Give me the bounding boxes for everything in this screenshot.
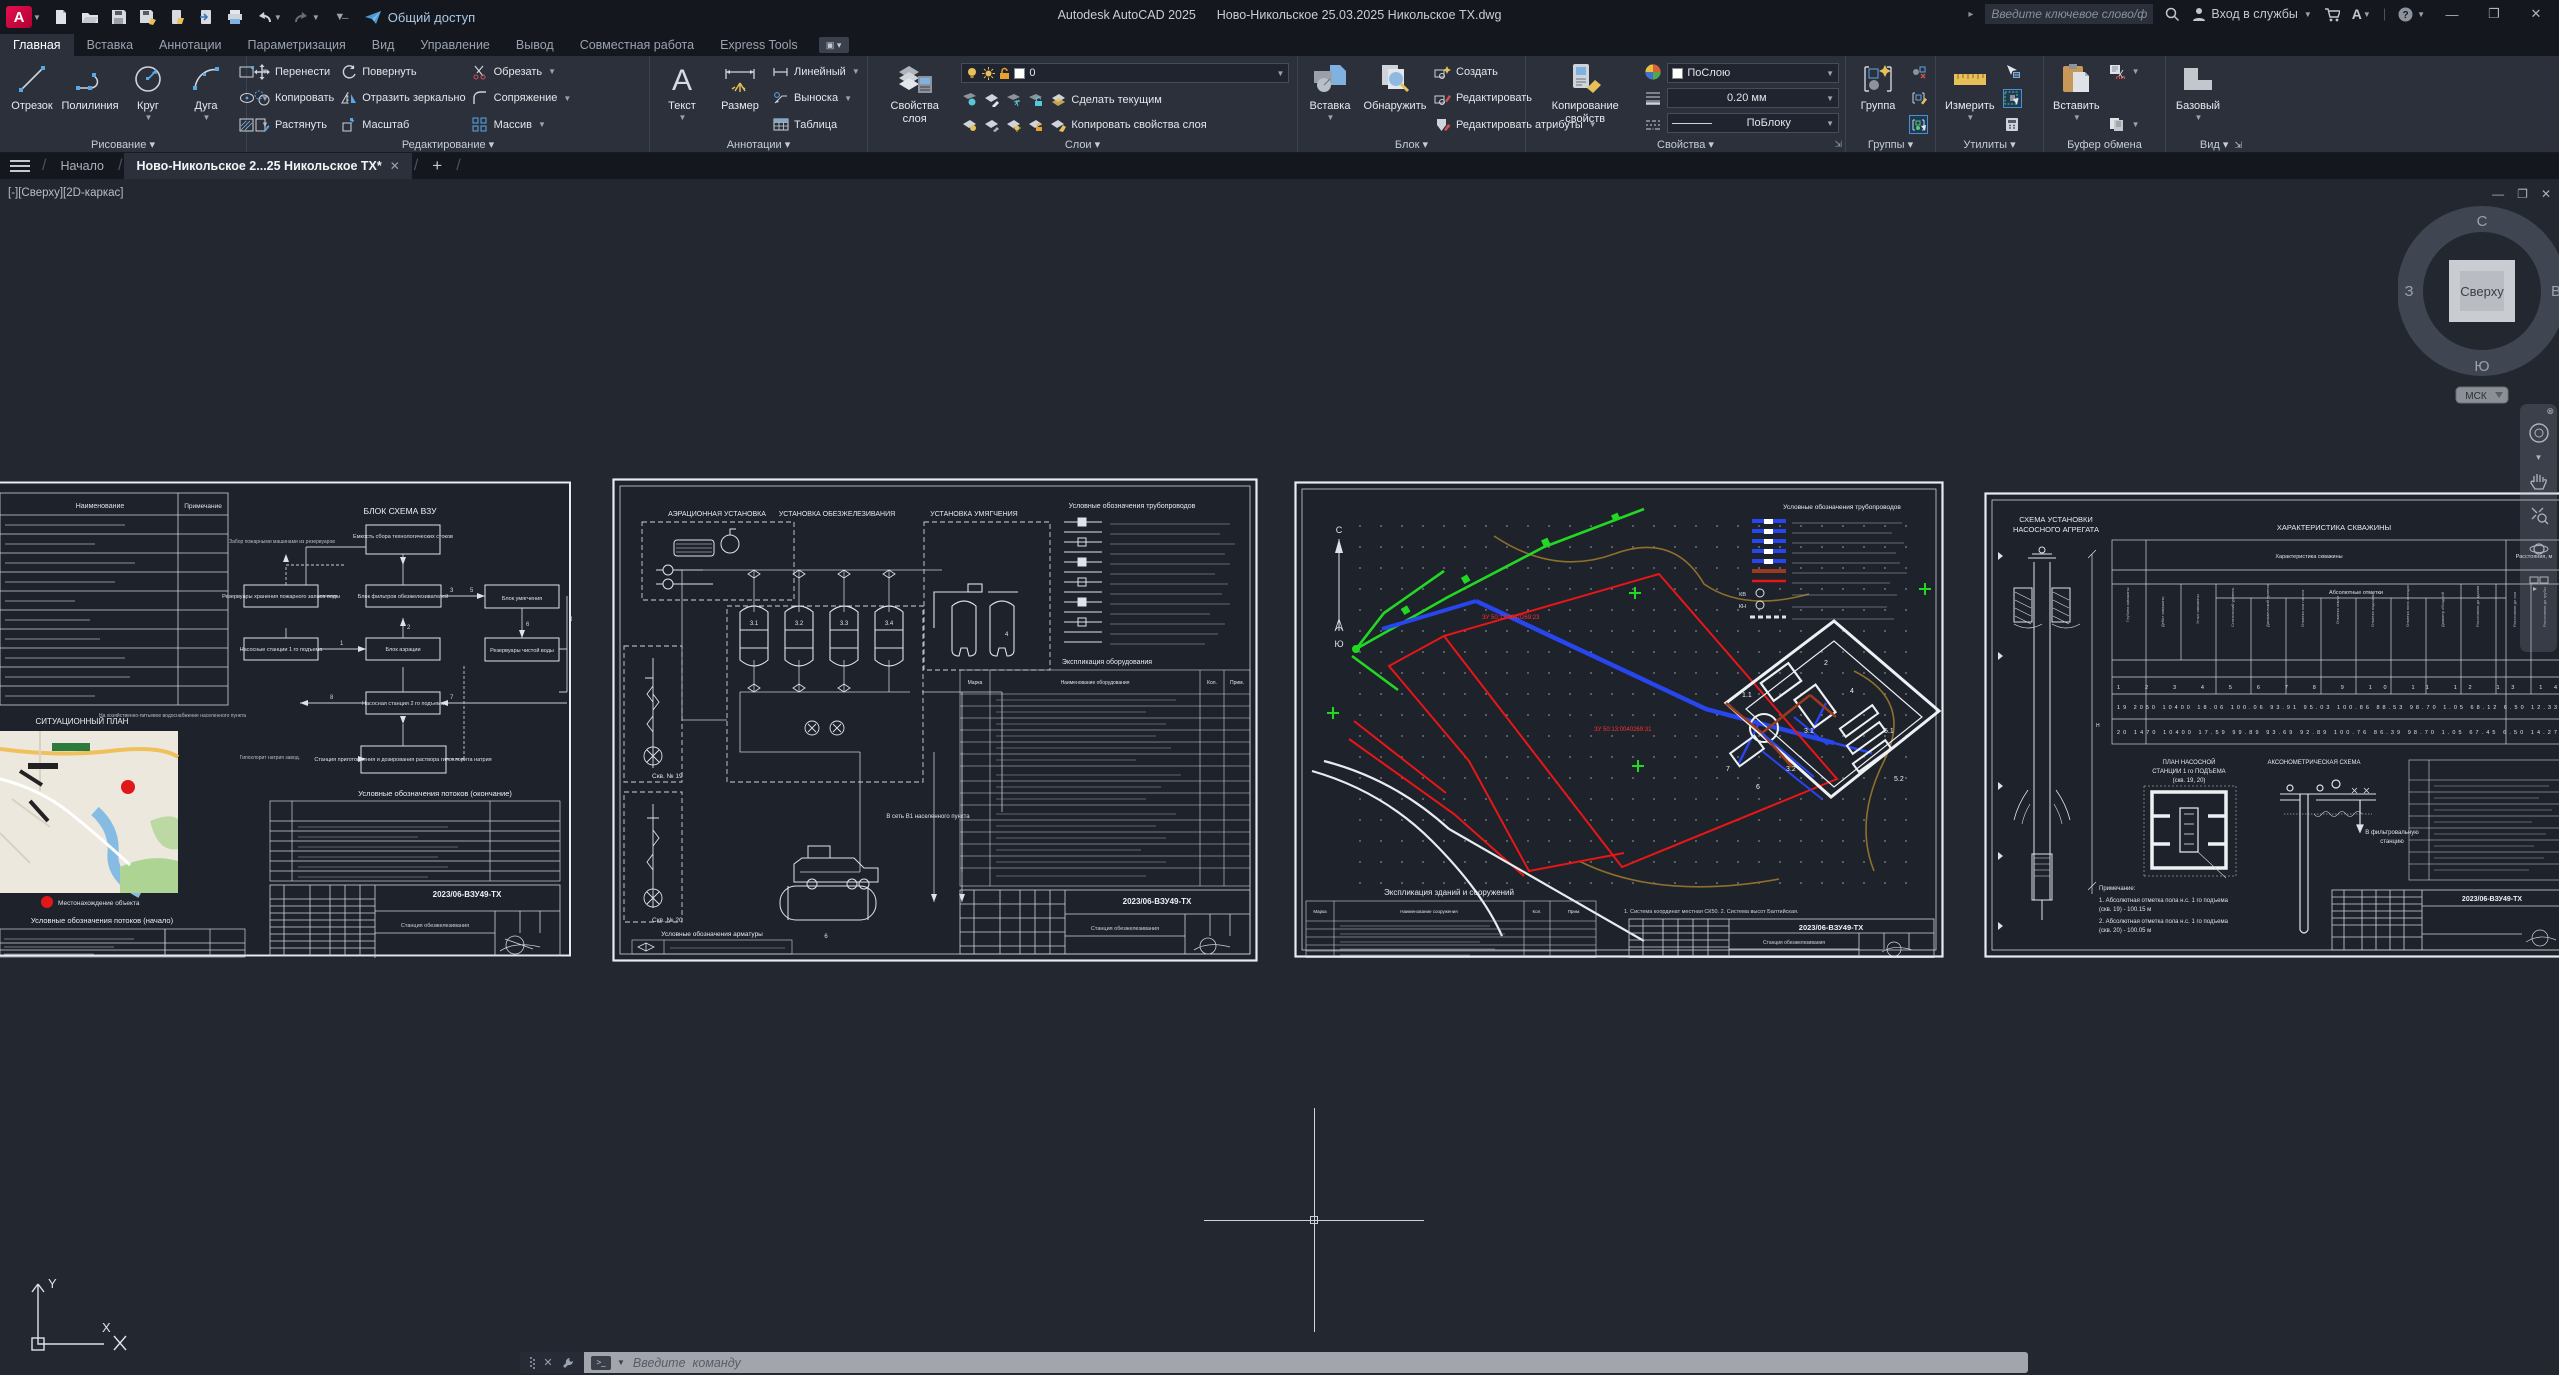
svg-text:Примечание: Примечание [184, 503, 222, 510]
show-motion-icon[interactable] [2520, 566, 2557, 600]
svg-text:8: 8 [330, 695, 334, 701]
stamp [1194, 938, 1230, 954]
linear-dim-button[interactable]: Линейный▼ [772, 63, 860, 80]
trim-scissors-icon [472, 63, 489, 80]
svg-text:Станция приготовления и дозиро: Станция приготовления и дозирования раст… [314, 757, 491, 763]
chevron-down-icon: ▼ [2363, 10, 2371, 19]
svg-text:2023/06-ВЗУ49-ТХ: 2023/06-ВЗУ49-ТХ [433, 890, 502, 899]
user-icon [2192, 7, 2206, 21]
insert-block-button[interactable]: Вставка▼ [1304, 59, 1356, 136]
keytip-arrow-icon[interactable]: ▸ [1968, 9, 1973, 20]
viewcube-north[interactable]: С [2477, 213, 2488, 230]
viewcube-east[interactable]: В [2551, 283, 2559, 300]
base-view-button[interactable]: Базовый▼ [2172, 59, 2224, 136]
layer-select[interactable]: 0 ▼ [961, 63, 1289, 83]
recent-commands-icon[interactable]: ▼ [617, 1358, 625, 1367]
panel-layers-label[interactable]: Слои ▾ [868, 138, 1297, 151]
sheet-4-drawing: СХЕМА УСТАНОВКИ НАСОСНОГО АГРЕГАТА ХАРАК… [1984, 492, 2559, 958]
doc-tab-start[interactable]: Начало [48, 153, 116, 179]
layer-freeze-icon[interactable] [1005, 91, 1022, 108]
svg-text:Наименование: Наименование [76, 503, 125, 510]
open-from-web-mobile-button[interactable] [197, 8, 215, 26]
svg-text:Емкость сбора технологических: Емкость сбора технологических стоков [353, 534, 453, 540]
autocad-logo-icon: A [6, 6, 32, 28]
svg-text:3.2: 3.2 [1786, 766, 1796, 773]
svg-text:Забор пожарными машинами из ре: Забор пожарными машинами из резервуаров [229, 539, 335, 545]
match-properties-icon [1567, 61, 1603, 97]
copy-clip-icon [2109, 116, 2126, 133]
measure-button[interactable]: Измерить▼ [1942, 59, 1998, 136]
ribbon-display-toggle[interactable]: ▣ ▾ [819, 37, 849, 53]
layer-unlock-icon [999, 67, 1010, 80]
svg-text:2: 2 [1824, 660, 1828, 667]
title-bar: A ▼ ▼ ▼ ▼̶ Общий доступ Autodesk AutoCAD… [0, 0, 2559, 34]
svg-text:1. Абсолютная отметка пола н.с: 1. Абсолютная отметка пола н.с. 1 го под… [2099, 898, 2229, 904]
fillet-icon [472, 90, 489, 107]
sheet-4-well-station: СХЕМА УСТАНОВКИ НАСОСНОГО АГРЕГАТА ХАРАК… [1984, 492, 2559, 958]
text-icon: A [667, 61, 697, 97]
svg-text:Резервуары хранения пожарного: Резервуары хранения пожарного запаса вод… [222, 594, 340, 600]
svg-text:2023/06-ВЗУ49-ТХ: 2023/06-ВЗУ49-ТХ [2462, 896, 2522, 903]
doc-tabs-menu-button[interactable] [0, 153, 40, 179]
svg-text:3.2: 3.2 [795, 621, 804, 627]
svg-text:6: 6 [824, 934, 828, 940]
svg-text:Y: Y [48, 1276, 57, 1291]
circle-button[interactable]: Круг▼ [122, 59, 174, 136]
ribbon: Отрезок Полилиния Круг▼ Дуга▼ ▼ ▼ ▼ Рисо… [0, 56, 2559, 153]
chevron-down-icon: ▼ [2417, 10, 2425, 19]
svg-text:?: ? [2403, 10, 2409, 21]
svg-text:20 1470 10400 17.59 99: 20 1470 10400 17.59 99.89 93.69 92.89 10… [2117, 730, 2557, 736]
share-plane-icon [364, 10, 382, 25]
share-button[interactable]: Общий доступ [364, 10, 475, 25]
circle-icon [131, 61, 165, 97]
rotate-icon [340, 63, 357, 80]
ucs-menu-button[interactable]: МСК [2456, 387, 2508, 403]
insert-block-icon [1312, 61, 1348, 97]
app-menu-button[interactable]: A ▼ [6, 6, 41, 28]
leader-button[interactable]: Выноска▼ [772, 90, 860, 107]
make-current-label[interactable]: Сделать текущим [1071, 94, 1161, 106]
svg-text:Прим.: Прим. [1230, 680, 1244, 686]
viewcube[interactable]: Сверху С В Ю З МСК [2398, 199, 2559, 411]
help-icon: ? [2398, 7, 2413, 22]
command-line-dock: ✕ >_ ▼ [520, 1352, 2028, 1373]
chevron-down-icon: ▼ [1276, 69, 1284, 78]
svg-text:5: 5 [470, 588, 474, 594]
svg-text:4: 4 [1005, 632, 1009, 638]
layer-lock-icon[interactable] [1027, 91, 1044, 108]
layer-thaw-all-icon[interactable] [1005, 116, 1022, 133]
svg-text:X: X [102, 1320, 111, 1335]
command-input-area[interactable]: >_ ▼ [584, 1352, 2028, 1373]
app-store-cart-icon[interactable] [2324, 7, 2340, 22]
svg-text:Характеристика скважины: Характеристика скважины [2275, 554, 2342, 560]
svg-text:АКСОНОМЕТРИЧЕСКАЯ СХЕМА: АКСОНОМЕТРИЧЕСКАЯ СХЕМА [2267, 760, 2360, 766]
svg-text:Скв. № 20: Скв. № 20 [652, 917, 683, 924]
move-icon [253, 63, 270, 80]
stamp [1882, 942, 1912, 956]
svg-text:Экспликация оборудования: Экспликация оборудования [1062, 658, 1152, 666]
new-doc-tab-button[interactable]: + [420, 153, 454, 179]
base-view-icon [2180, 61, 2216, 97]
group-icon [1861, 61, 1895, 97]
linetype-icon [1644, 116, 1661, 133]
viewcube-south[interactable]: Ю [2474, 358, 2489, 375]
layer-row-2: Сделать текущим [961, 91, 1291, 108]
redo-button[interactable]: ▼ [293, 10, 320, 24]
svg-text:6: 6 [1756, 784, 1760, 791]
svg-text:КН: КН [1739, 604, 1746, 610]
make-current-layer-icon[interactable] [1049, 91, 1066, 108]
viewcube-top-label: Сверху [2460, 284, 2504, 299]
sheet-2-drawing: АЭРАЦИОННАЯ УСТАНОВКА УСТАНОВКА ОБЕЗЖЕЛЕ… [612, 478, 1258, 962]
svg-text:МСК: МСК [2465, 391, 2487, 402]
lineweight-icon [1644, 90, 1661, 107]
layer-properties-icon [896, 61, 934, 97]
color-wheel-icon [1644, 63, 1661, 80]
mirror-button[interactable]: Отразить зеркально [340, 90, 465, 107]
svg-text:Дебит скважины: Дебит скважины [2160, 596, 2165, 627]
layer-properties-button[interactable]: Свойства слоя [874, 59, 955, 136]
quick-select-icon[interactable] [2004, 63, 2021, 80]
panel-annotation-label[interactable]: Аннотации ▾ [650, 138, 867, 151]
svg-text:АЭРАЦИОННАЯ УСТАНОВКА: АЭРАЦИОННАЯ УСТАНОВКА [668, 511, 766, 518]
svg-text:С: С [1336, 525, 1343, 535]
svg-text:УСТАНОВКА ОБЕЗЖЕЛЕЗИВАНИЯ: УСТАНОВКА ОБЕЗЖЕЛЕЗИВАНИЯ [779, 511, 895, 518]
tab-upravlenie[interactable]: Управление [407, 34, 503, 56]
panel-properties-label[interactable]: Свойства ▾ [1526, 138, 1845, 151]
current-layer-name: 0 [1029, 67, 1271, 79]
stamp [2526, 930, 2556, 946]
save-to-web-mobile-button[interactable] [168, 8, 186, 26]
detect-block-icon [1378, 61, 1412, 97]
ungroup-icon[interactable] [1910, 63, 1927, 80]
cut-button[interactable]: ▼ [2109, 63, 2140, 80]
create-block-icon [1434, 63, 1451, 80]
svg-text:(скв. 19, 20): (скв. 19, 20) [2173, 778, 2206, 784]
tab-annotacii[interactable]: Аннотации [146, 34, 234, 56]
svg-text:Кол.: Кол. [1207, 680, 1217, 686]
steering-wheel-icon[interactable] [2520, 416, 2557, 450]
svg-text:Отметка оси насоса: Отметка оси насоса [2300, 589, 2305, 627]
svg-text:ХАРАКТЕРИСТИКА СКВАЖИНЫ: ХАРАКТЕРИСТИКА СКВАЖИНЫ [2277, 523, 2392, 532]
window-title: Autodesk AutoCAD 2025 Ново-Никольское 25… [1058, 8, 1502, 22]
quick-access-toolbar: A ▼ ▼ ▼ ▼̶ Общий доступ [6, 2, 475, 32]
svg-text:БЛОК СХЕМА ВЗУ: БЛОК СХЕМА ВЗУ [363, 506, 437, 516]
properties-dialog-launcher[interactable]: ⇲ [1834, 139, 1842, 150]
group-selection-toggle[interactable] [1910, 116, 1927, 133]
svg-text:19 2050 10400 18.06 10: 19 2050 10400 18.06 100.06 93.91 95.03 1… [2117, 705, 2557, 711]
trim-button[interactable]: Обрезать▼ [472, 63, 572, 80]
svg-text:ПЛАН НАСОСНОЙ: ПЛАН НАСОСНОЙ [2163, 758, 2216, 766]
svg-text:3.3: 3.3 [840, 621, 849, 627]
match-layer-icon[interactable] [1049, 116, 1066, 133]
close-doc-icon[interactable]: ✕ [390, 159, 400, 173]
layer-thaw-sun-icon [982, 67, 995, 80]
help-button[interactable]: ? ▼ [2398, 7, 2425, 22]
svg-text:Наименование сооружения: Наименование сооружения [1400, 909, 1458, 914]
layer-isolate-icon[interactable] [983, 91, 1000, 108]
open-file-button[interactable] [81, 8, 99, 26]
svg-text:4: 4 [1850, 688, 1854, 695]
search-icon[interactable] [2165, 7, 2180, 22]
autocad-window: A ▼ ▼ ▼ ▼̶ Общий доступ Autodesk AutoCAD… [0, 0, 2559, 1375]
copy-icon [253, 90, 270, 107]
svg-text:станцию: станцию [2380, 839, 2404, 845]
svg-text:Марка: Марка [1313, 909, 1327, 914]
search-input[interactable] [1985, 4, 2153, 24]
chevron-down-icon: ▼ [33, 13, 41, 22]
sheet-3-drawing: С Ю [1294, 481, 1944, 958]
layer-unisolate-icon[interactable] [983, 116, 1000, 133]
command-input[interactable] [631, 1355, 2021, 1371]
fillet-button[interactable]: Сопряжение▼ [472, 90, 572, 107]
scale-button[interactable]: Масштаб [340, 116, 465, 133]
group-button[interactable]: Группа [1852, 59, 1904, 136]
svg-text:Прим.: Прим. [1568, 909, 1581, 914]
panel-utilities-label[interactable]: Утилиты ▾ [1936, 138, 2043, 151]
arc-icon [189, 61, 223, 97]
svg-text:Условные обозначения трубопров: Условные обозначения трубопроводов [1069, 502, 1196, 510]
layer-row-3: Копировать свойства слоя [961, 116, 1291, 133]
svg-text:Условные обозначения потоков (: Условные обозначения потоков (начало) [31, 916, 174, 925]
panel-groups-label[interactable]: Группы ▾ [1846, 138, 1935, 151]
tab-vstavka[interactable]: Вставка [74, 34, 146, 56]
line-icon [15, 61, 49, 97]
panel-groups: Группа Группы ▾ [1846, 56, 1936, 152]
dimension-icon [722, 61, 758, 97]
svg-text:Примечание:: Примечание: [2099, 886, 2136, 892]
svg-text:Глубина скважины: Глубина скважины [2125, 587, 2130, 622]
svg-text:Резервуары чистой воды: Резервуары чистой воды [490, 647, 554, 654]
cut-icon [2109, 63, 2126, 80]
panel-block: Вставка▼ Обнаружить Создать Редактироват… [1298, 56, 1526, 152]
svg-text:Марка: Марка [968, 680, 983, 686]
rotate-button[interactable]: Повернуть [340, 63, 465, 80]
svg-text:2023/06-ВЗУ49-ТХ: 2023/06-ВЗУ49-ТХ [1799, 923, 1863, 932]
copy-button[interactable]: Копировать [253, 90, 334, 107]
detect-block-button[interactable]: Обнаружить [1362, 59, 1428, 136]
panel-draw: Отрезок Полилиния Круг▼ Дуга▼ ▼ ▼ ▼ Рисо… [0, 56, 247, 152]
copy-clip-button[interactable]: ▼ [2109, 116, 2140, 133]
svg-text:2023/06-ВЗУ49-ТХ: 2023/06-ВЗУ49-ТХ [1123, 897, 1192, 906]
mirror-icon [340, 90, 357, 107]
viewcube-west[interactable]: З [2404, 283, 2413, 300]
svg-text:A: A [672, 64, 692, 95]
tab-vyvod[interactable]: Вывод [503, 34, 567, 56]
command-close-icon[interactable]: ✕ [543, 1356, 552, 1369]
linear-dim-icon [772, 63, 789, 80]
panel-clipboard: Вставить▼ ▼ ▼ Буфер обмена [2044, 56, 2166, 152]
svg-text:Блок фильтров обезжелезивателе: Блок фильтров обезжелезивателей [358, 593, 449, 600]
sign-in-button[interactable]: Вход в службы▼ [2192, 7, 2311, 21]
panel-block-label[interactable]: Блок ▾ [1298, 138, 1525, 151]
svg-text:6: 6 [526, 622, 530, 628]
ribbon-tab-bar: Главная Вставка Аннотации Параметризация… [0, 34, 2559, 56]
doc-tab-current[interactable]: Ново-Никольское 2...25 Никольское ТХ* ✕ [124, 153, 411, 179]
svg-text:Отметка подошвы: Отметка подошвы [2370, 593, 2375, 627]
edit-block-icon [1434, 90, 1451, 107]
pan-hand-icon[interactable] [2520, 464, 2557, 498]
svg-text:Устье скважины: Устье скважины [2195, 594, 2200, 624]
tab-express-tools[interactable]: Express Tools [707, 34, 811, 56]
panel-annotation: A Текст▼ Размер Линейный▼ Выноска▼ Табли… [650, 56, 868, 152]
svg-text:Наименование оборудования: Наименование оборудования [1061, 680, 1130, 686]
edit-attributes-icon [1434, 116, 1451, 133]
sheet-3-site-plan: С Ю [1294, 481, 1944, 958]
zoom-icon[interactable] [2520, 498, 2557, 532]
chevron-down-icon: ▼ [312, 13, 320, 22]
command-prompt-icon[interactable]: >_ [591, 1356, 611, 1370]
svg-text:Условные обозначения арматуры: Условные обозначения арматуры [661, 930, 763, 938]
panel-clipboard-label: Буфер обмена [2044, 139, 2165, 151]
array-icon [472, 116, 489, 133]
select-all-icon[interactable] [2004, 90, 2021, 107]
svg-text:Станция обезжелезивания: Станция обезжелезивания [1763, 940, 1825, 946]
lineweight-select[interactable]: 0.20 мм▼ [1667, 88, 1839, 108]
svg-text:7: 7 [450, 695, 454, 701]
match-layer-label[interactable]: Копировать свойства слоя [1071, 119, 1206, 131]
drawing-canvas[interactable]: [-][Сверху][2D-каркас] — ❐ ✕ Наименовани… [0, 179, 2559, 1375]
svg-text:Насосная станция 2 го подъема: Насосная станция 2 го подъема [362, 701, 445, 707]
match-properties-button[interactable]: Копирование свойств [1532, 59, 1638, 136]
svg-text:1 2 3 4 5 6 7 8: 1 2 3 4 5 6 7 8 9 10 11 12 13 14 [2117, 685, 2557, 691]
panel-properties: Копирование свойств ПоСлою▼ 0.20 мм▼ ПоБ… [1526, 56, 1846, 152]
svg-text:3.4: 3.4 [885, 621, 894, 627]
sheet-1-drawing: Наименование Примечание БЛОК СХЕМА ВЗУ [0, 481, 572, 958]
svg-text:НАСОСНОГО АГРЕГАТА: НАСОСНОГО АГРЕГАТА [2013, 525, 2099, 534]
stretch-button[interactable]: Растянуть [253, 116, 334, 133]
hamburger-icon [10, 159, 30, 173]
svg-text:Отметка земли: Отметка земли [2335, 596, 2340, 624]
svg-text:3.1: 3.1 [1804, 728, 1814, 735]
stretch-icon [253, 116, 270, 133]
undo-button[interactable]: ▼ [255, 10, 282, 24]
svg-text:1.1: 1.1 [1742, 692, 1752, 699]
ucs-icon: Y X [18, 1274, 128, 1356]
customize-qat-button[interactable]: ▼̶ [331, 8, 349, 26]
paste-clipboard-icon [2059, 61, 2093, 97]
text-button[interactable]: A Текст▼ [656, 59, 708, 136]
tab-parametrizaciya[interactable]: Параметризация [235, 34, 359, 56]
array-button[interactable]: Массив▼ [472, 116, 572, 133]
layer-off-icon[interactable] [961, 91, 978, 108]
orbit-icon[interactable] [2520, 532, 2557, 566]
quick-calc-icon[interactable] [2004, 116, 2021, 133]
svg-text:ЗУ 50:13:0040269:23: ЗУ 50:13:0040269:23 [1482, 615, 1540, 621]
tab-sovmestnaya-rabota[interactable]: Совместная работа [567, 34, 707, 56]
viewport-controls[interactable]: [-][Сверху][2D-каркас] [8, 187, 123, 199]
panel-view-label[interactable]: Вид ▾ ⇲ [2166, 138, 2276, 151]
close-button[interactable]: ✕ [2521, 6, 2551, 22]
svg-text:H: H [2096, 723, 2100, 729]
svg-text:СХЕМА УСТАНОВКИ: СХЕМА УСТАНОВКИ [2019, 515, 2093, 524]
svg-text:СТАНЦИИ 1 го ПОДЪЕМА: СТАНЦИИ 1 го ПОДЪЕМА [2152, 769, 2225, 775]
layer-unlock-all-icon[interactable] [1027, 116, 1044, 133]
svg-text:Динамический уровень: Динамический уровень [2265, 584, 2270, 627]
svg-text:Ю: Ю [1334, 639, 1343, 649]
svg-text:В сеть В1 населенного пункта: В сеть В1 населенного пункта [886, 814, 970, 820]
drag-grip-icon[interactable] [529, 1356, 535, 1370]
new-file-button[interactable] [52, 8, 70, 26]
layer-on-all-icon[interactable] [961, 116, 978, 133]
panel-utilities: Измерить▼ Утилиты ▾ [1936, 56, 2044, 152]
scale-icon [340, 116, 357, 133]
svg-text:3.1: 3.1 [750, 621, 759, 627]
dimension-button[interactable]: Размер [714, 59, 766, 136]
tab-glavnaya[interactable]: Главная [0, 34, 74, 56]
svg-text:5.1: 5.1 [1884, 728, 1894, 735]
document-tab-bar: / Начало / Ново-Никольское 2...25 Николь… [0, 153, 2559, 179]
svg-text:Станция обезжелезивания: Станция обезжелезивания [401, 923, 469, 929]
polyline-button[interactable]: Полилиния [64, 59, 116, 136]
linetype-select[interactable]: ПоБлоку▼ [1667, 113, 1839, 133]
minimize-button[interactable]: — [2437, 7, 2467, 22]
tab-vid[interactable]: Вид [359, 34, 408, 56]
layer-on-bulb-icon [966, 67, 978, 79]
save-as-button[interactable] [139, 8, 157, 26]
svg-text:5.2: 5.2 [1894, 776, 1904, 783]
chevron-down-icon[interactable]: ▼ [2520, 450, 2557, 464]
svg-text:2: 2 [407, 625, 411, 631]
sheet-1-block-scheme: Наименование Примечание БЛОК СХЕМА ВЗУ [0, 481, 572, 958]
line-button[interactable]: Отрезок [6, 59, 58, 136]
paste-button[interactable]: Вставить▼ [2050, 59, 2103, 136]
panel-edit: Перенести Копировать Растянуть Повернуть… [247, 56, 650, 152]
svg-text:Экспликация зданий и сооружени: Экспликация зданий и сооружений [1384, 888, 1514, 897]
panel-edit-label[interactable]: Редактирование ▾ [247, 138, 649, 151]
svg-text:3: 3 [450, 588, 454, 594]
table-button[interactable]: Таблица [772, 116, 860, 133]
svg-text:Кол.: Кол. [1533, 909, 1542, 914]
svg-text:Блок умягчения: Блок умягчения [502, 596, 542, 602]
svg-text:Расстояние до оси: Расстояние до оси [2512, 592, 2517, 627]
svg-text:Станция обезжелезивания: Станция обезжелезивания [1091, 926, 1159, 932]
svg-text:Блок аэрации: Блок аэрации [385, 647, 420, 653]
save-button[interactable] [110, 8, 128, 26]
restore-button[interactable]: ❐ [2479, 6, 2509, 22]
svg-text:Статический уровень: Статический уровень [2230, 587, 2235, 627]
svg-text:1: 1 [340, 641, 344, 647]
arc-button[interactable]: Дуга▼ [180, 59, 232, 136]
svg-text:2. Абсолютная отметка пола н.с: 2. Абсолютная отметка пола н.с. 1 го под… [2099, 919, 2229, 925]
svg-text:ЗУ 50:13:0040269:31: ЗУ 50:13:0040269:31 [1594, 727, 1652, 733]
chevron-down-icon: ▼ [274, 13, 282, 22]
chevron-down-icon: ▼ [2304, 10, 2312, 19]
svg-text:На хозяйственно-питьевое водос: На хозяйственно-питьевое водоснабжение н… [99, 712, 246, 719]
customize-wrench-icon[interactable] [561, 1356, 575, 1370]
svg-text:Отметка пола станции: Отметка пола станции [2405, 585, 2410, 627]
panel-layers: Свойства слоя 0 ▼ Сделать теку [868, 56, 1298, 152]
panel-draw-label[interactable]: Рисование ▾ [0, 138, 246, 151]
group-edit-icon[interactable] [1910, 90, 1927, 107]
navigation-bar[interactable]: ⊗ ▼ [2520, 404, 2557, 652]
autodesk-apps-button[interactable]: A▼ [2352, 6, 2371, 22]
measure-ruler-icon [1951, 61, 1989, 97]
move-button[interactable]: Перенести [253, 63, 334, 80]
svg-text:Гипохлорит натрия завод.: Гипохлорит натрия завод. [240, 755, 300, 761]
crosshair-pickbox [1310, 1216, 1318, 1224]
panel-view: Базовый▼ Вид ▾ ⇲ [2166, 56, 2276, 152]
svg-text:УСТАНОВКА УМЯГЧЕНИЯ: УСТАНОВКА УМЯГЧЕНИЯ [930, 511, 1017, 518]
svg-text:11: 11 [570, 617, 572, 623]
svg-text:Местонахождение объекта: Местонахождение объекта [58, 899, 140, 907]
color-select[interactable]: ПоСлою▼ [1667, 63, 1839, 83]
plot-button[interactable] [226, 8, 244, 26]
table-icon [772, 116, 789, 133]
svg-text:Условные обозначения потоков (: Условные обозначения потоков (окончание) [358, 789, 512, 798]
